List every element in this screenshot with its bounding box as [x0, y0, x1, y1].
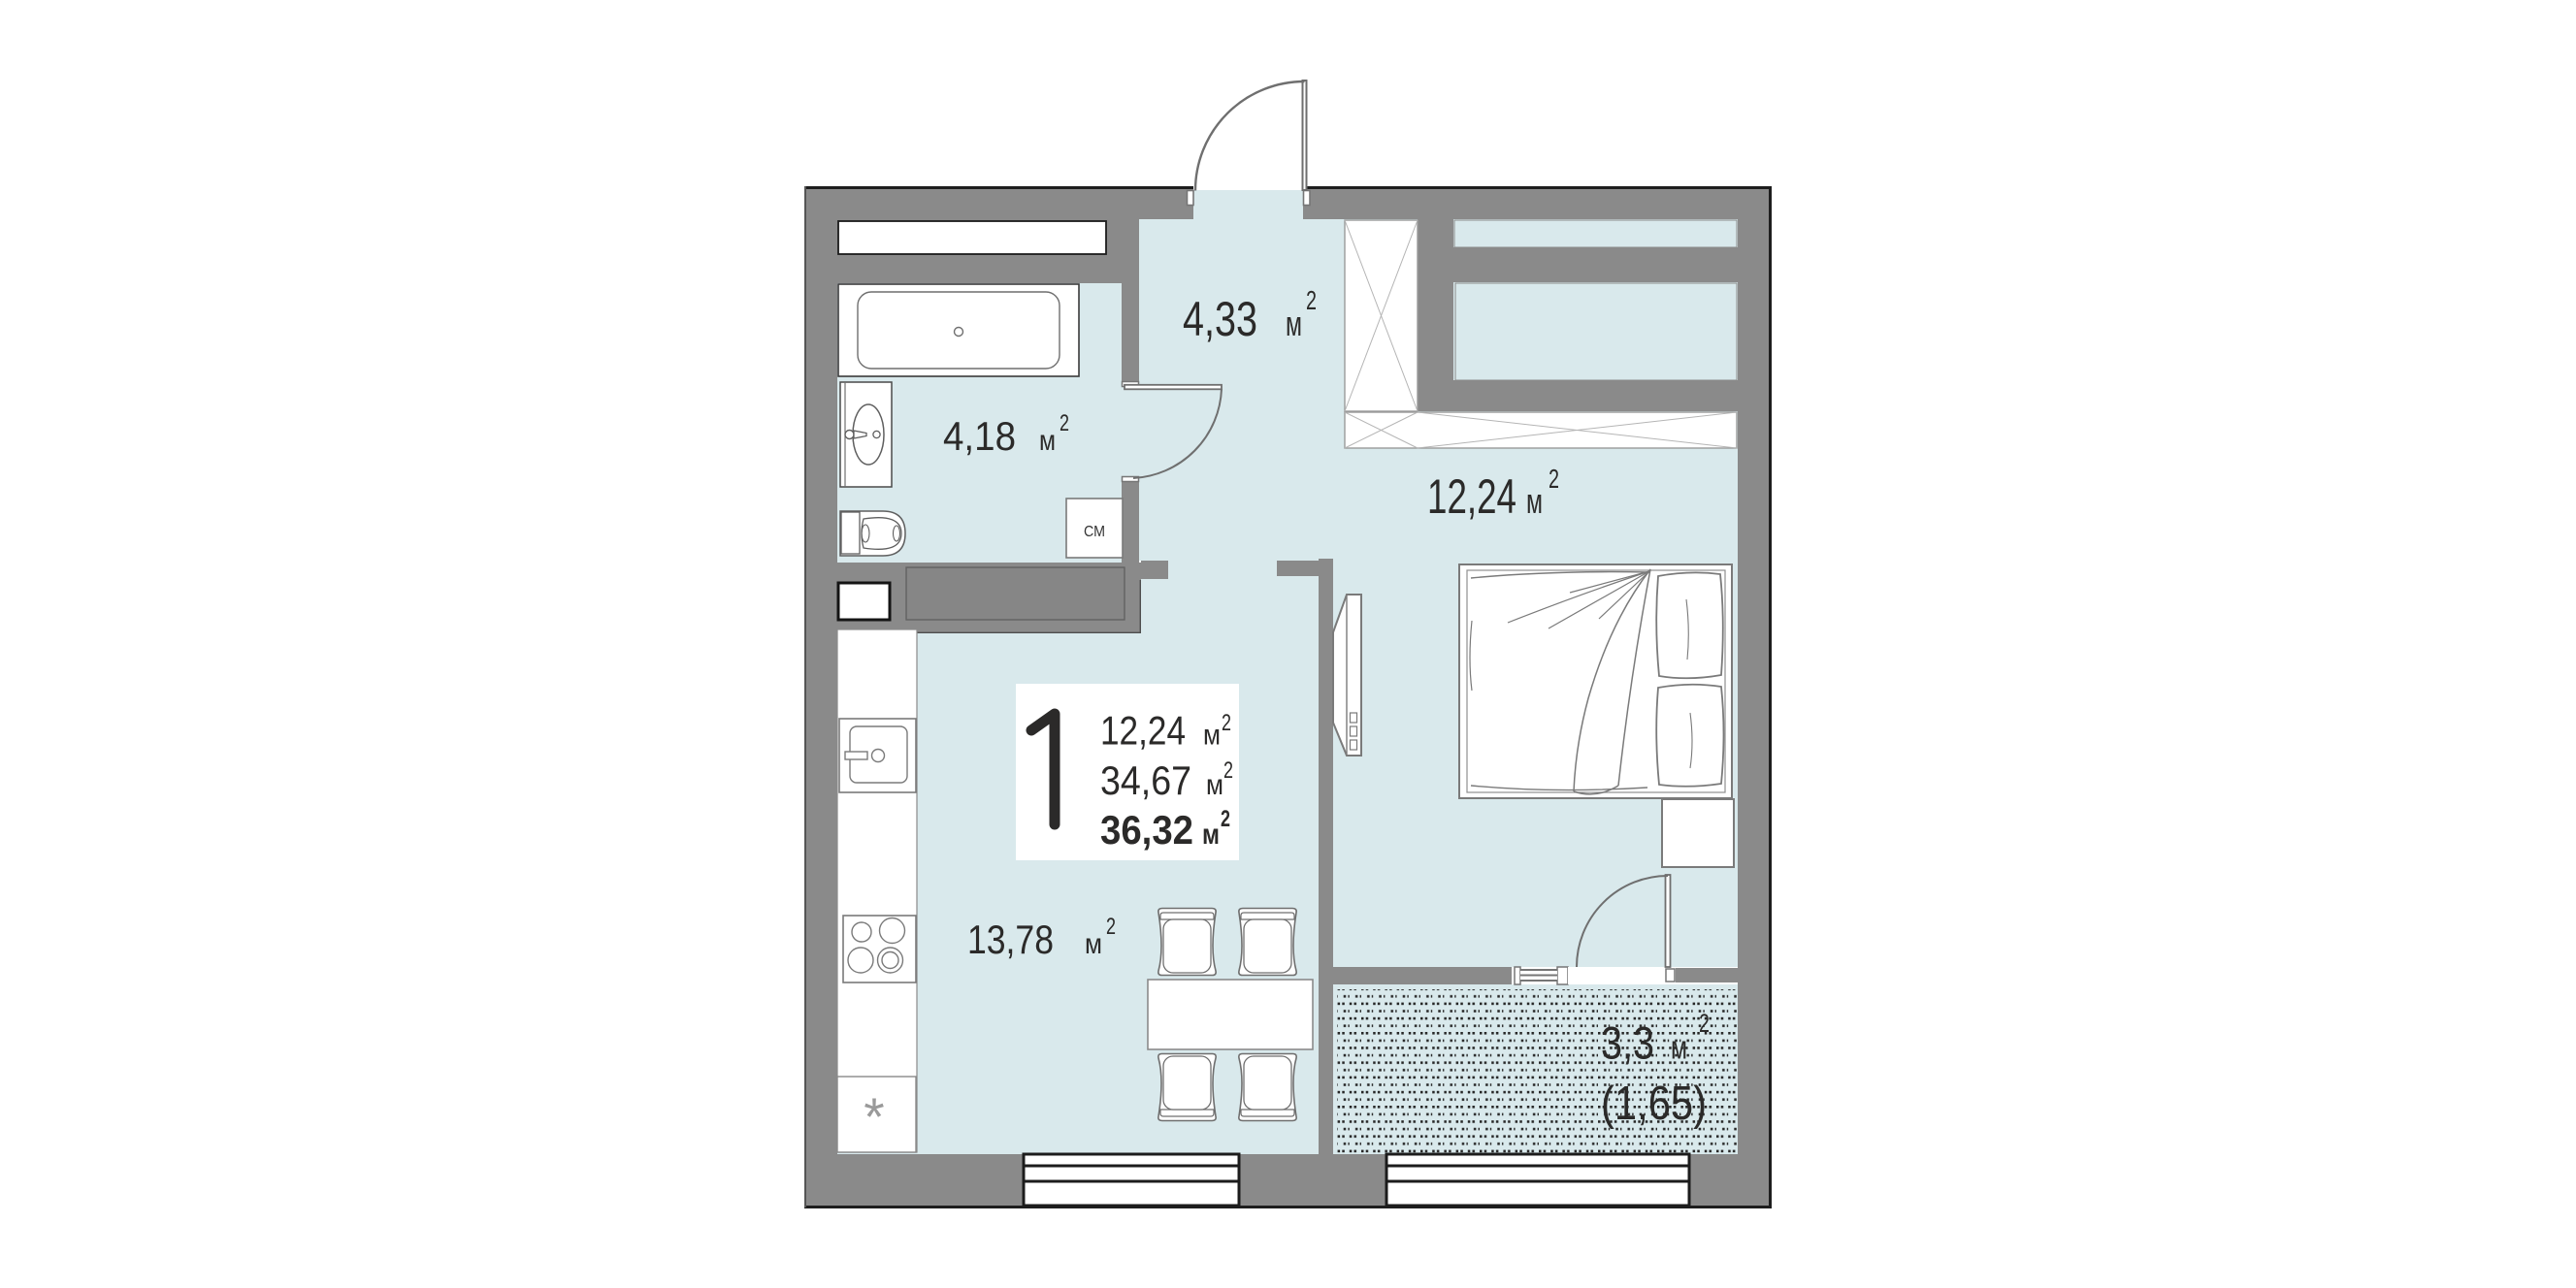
svg-text:2: 2: [1222, 710, 1231, 736]
svg-text:4,33: 4,33: [1183, 292, 1257, 346]
svg-text:(1,65): (1,65): [1601, 1078, 1707, 1130]
svg-text:12,24: 12,24: [1427, 469, 1516, 524]
svg-text:2: 2: [1060, 410, 1069, 436]
svg-text:4,18: 4,18: [943, 413, 1016, 459]
svg-text:м: м: [1206, 769, 1223, 801]
svg-text:м: м: [1526, 481, 1543, 521]
svg-text:2: 2: [1221, 806, 1230, 832]
svg-text:*: *: [864, 1086, 884, 1146]
svg-text:м: м: [1085, 928, 1102, 960]
svg-text:м: м: [1039, 425, 1056, 457]
svg-text:2: 2: [1699, 1009, 1710, 1038]
svg-text:м: м: [1286, 304, 1302, 343]
svg-text:м: м: [1671, 1030, 1687, 1067]
svg-text:2: 2: [1306, 285, 1317, 315]
svg-text:34,67: 34,67: [1100, 757, 1191, 803]
svg-text:36,32: 36,32: [1100, 807, 1193, 853]
svg-text:м: м: [1202, 819, 1220, 851]
svg-text:2: 2: [1223, 757, 1233, 784]
svg-text:2: 2: [1549, 464, 1559, 494]
svg-text:м: м: [1203, 720, 1221, 752]
svg-text:2: 2: [1106, 914, 1116, 940]
svg-text:3,3: 3,3: [1601, 1017, 1654, 1069]
svg-text:12,24: 12,24: [1100, 708, 1186, 754]
svg-text:13,78: 13,78: [967, 917, 1054, 962]
svg-text:СМ: СМ: [1084, 524, 1105, 540]
